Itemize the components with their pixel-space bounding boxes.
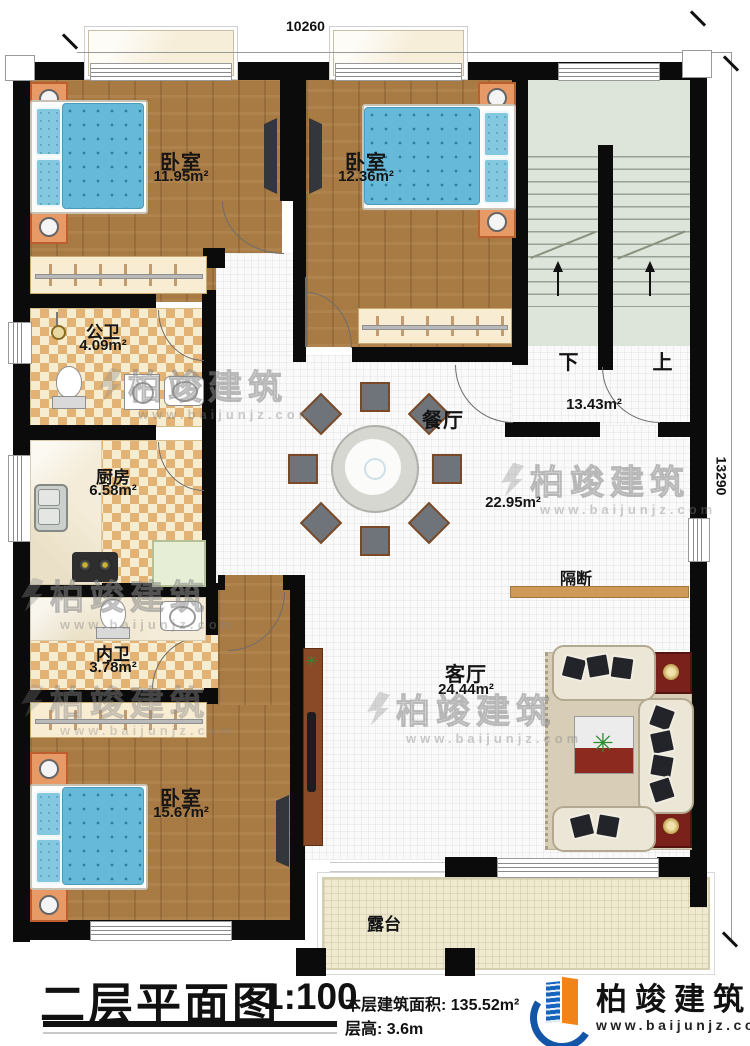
dimension-line-right xyxy=(731,52,732,940)
dimension-tick xyxy=(690,10,706,26)
area-bedroom-top-left: 11.95m² xyxy=(153,168,208,185)
wall-bed2-bottom xyxy=(352,347,512,362)
toilet-tank xyxy=(52,396,86,409)
pillow xyxy=(35,158,62,207)
kitchen-sink-basin-1 xyxy=(38,489,60,506)
wall-bed3-entry-left xyxy=(218,575,225,590)
dimension-tick xyxy=(722,931,738,947)
area-kitchen: 6.58m² xyxy=(89,482,137,499)
pendant-lamp xyxy=(56,312,58,326)
label-dining: 餐厅 xyxy=(422,404,464,433)
nightstand xyxy=(30,752,68,786)
quilt xyxy=(62,787,144,885)
floor-area-text: 本层建筑面积: 135.52m² xyxy=(345,991,519,1015)
label-partition: 隔断 xyxy=(560,565,592,589)
dimension-line-top xyxy=(77,52,731,53)
plan-scale: 1:100 xyxy=(263,976,358,1018)
label-terrace: 露台 xyxy=(367,910,401,935)
side-table-top xyxy=(652,652,692,694)
partition-bar xyxy=(510,586,689,598)
tv-bedroom-bottom xyxy=(276,795,289,867)
terrace-passage-threshold2 xyxy=(330,871,445,872)
label-stairs-down: 下 xyxy=(559,346,580,375)
terrace-pillar-left xyxy=(296,948,326,976)
wall-ibath-right-upper xyxy=(204,597,218,635)
toilet-public-bath xyxy=(56,366,82,398)
area-dining: 22.95m² xyxy=(485,494,541,511)
sink-basin xyxy=(172,381,198,402)
pillow xyxy=(483,111,510,157)
stair-arrow-up-flight xyxy=(649,266,651,296)
wardrobe-bed2 xyxy=(358,308,512,344)
stove-burner-left xyxy=(78,558,92,572)
title-underline xyxy=(43,1021,337,1027)
pillow xyxy=(35,107,62,156)
nightstand xyxy=(30,888,68,922)
wall-stair-divider xyxy=(598,145,613,370)
quilt xyxy=(62,103,144,209)
wall-pbath-right xyxy=(202,290,216,440)
brand-logo: 柏竣建筑 www.baijunjz.com xyxy=(530,978,750,1038)
terrace-pillar-mid xyxy=(445,948,475,976)
plant-icon-small: ✳ xyxy=(305,652,318,670)
pillow xyxy=(483,158,510,204)
dimension-box-top-right xyxy=(682,50,712,78)
tv-bedroom-top-left xyxy=(264,118,277,194)
dining-chair xyxy=(288,454,318,484)
kitchen-sink-basin-2 xyxy=(38,508,60,525)
wardrobe-bed3 xyxy=(30,702,207,738)
area-public-bath: 4.09m² xyxy=(79,337,127,354)
terrace-passage-threshold xyxy=(330,862,445,863)
area-bedroom-bottom: 15.67m² xyxy=(153,804,209,821)
label-stairs-up: 上 xyxy=(653,346,674,375)
plant-icon: ✳ xyxy=(592,728,614,759)
window-living-terrace xyxy=(497,858,659,878)
pendant-lamp-bulb xyxy=(51,325,66,340)
dining-chair xyxy=(360,382,390,412)
window-kitchen-left xyxy=(8,455,32,542)
door-leaf-bedroom-top-mid xyxy=(305,277,307,347)
brand-name: 柏竣建筑 xyxy=(596,984,750,1015)
wall-pbath-kitchen xyxy=(13,425,156,440)
window-bed3-bottom xyxy=(90,921,232,941)
pillow xyxy=(35,838,62,884)
wall-stairhall-bottom-right xyxy=(658,422,690,437)
area-bedroom-top-mid: 12.36m² xyxy=(338,168,394,185)
wall-stairhall-bottom-left xyxy=(505,422,600,437)
sofa-cushion xyxy=(648,752,676,780)
dimension-box-top-left xyxy=(5,55,35,81)
washing-machine-drum xyxy=(132,382,154,404)
wardrobe-bed1 xyxy=(30,256,207,294)
wall-pbath-kitchen-right xyxy=(203,425,216,440)
area-living: 24.44m² xyxy=(438,681,494,698)
dining-table-center xyxy=(364,458,386,480)
sink-inner-basin xyxy=(169,606,196,628)
fridge xyxy=(152,540,206,587)
wall-living-terrace-right xyxy=(657,857,690,877)
window-public-bath-left xyxy=(8,322,32,364)
dimension-top: 10260 xyxy=(286,18,325,34)
pillow xyxy=(35,791,62,837)
tv-bedroom-top-mid xyxy=(309,118,322,194)
toilet-inner-tank xyxy=(96,627,130,639)
brand-building-icon xyxy=(530,978,588,1038)
stove-burner-right xyxy=(98,558,112,572)
brand-website: www.baijunjz.com xyxy=(596,1017,750,1033)
wall-bed1-bed2-upper xyxy=(280,62,306,201)
area-inner-bath: 3.78m² xyxy=(89,659,137,676)
stair-arrow-down-flight xyxy=(557,266,559,296)
sofa-cushion xyxy=(608,654,635,681)
floor-height-text: 层高: 3.6m xyxy=(345,1015,423,1039)
dimension-right: 13290 xyxy=(713,457,729,496)
tv-living xyxy=(307,712,316,792)
dining-chair xyxy=(360,526,390,556)
nightstand xyxy=(478,206,516,238)
dining-chair xyxy=(432,454,462,484)
toilet-inner-bath xyxy=(100,599,126,630)
nightstand xyxy=(30,210,68,244)
sofa-cushion xyxy=(594,812,622,840)
dimension-tick xyxy=(62,33,78,49)
wall-living-terrace-left xyxy=(445,857,497,877)
area-stair-hall: 13.43m² xyxy=(566,396,622,413)
floor-plan-page: ✳ ✳ 卧室 11.95m² 卧室 12.36m² 公卫 4.09m² 厨房 6… xyxy=(0,0,750,1046)
window-bed2-top xyxy=(335,63,462,81)
title-underline-thin xyxy=(43,1032,337,1034)
window-bed1-top xyxy=(90,63,232,81)
window-stair-top xyxy=(558,63,660,81)
window-living-right xyxy=(688,518,710,562)
